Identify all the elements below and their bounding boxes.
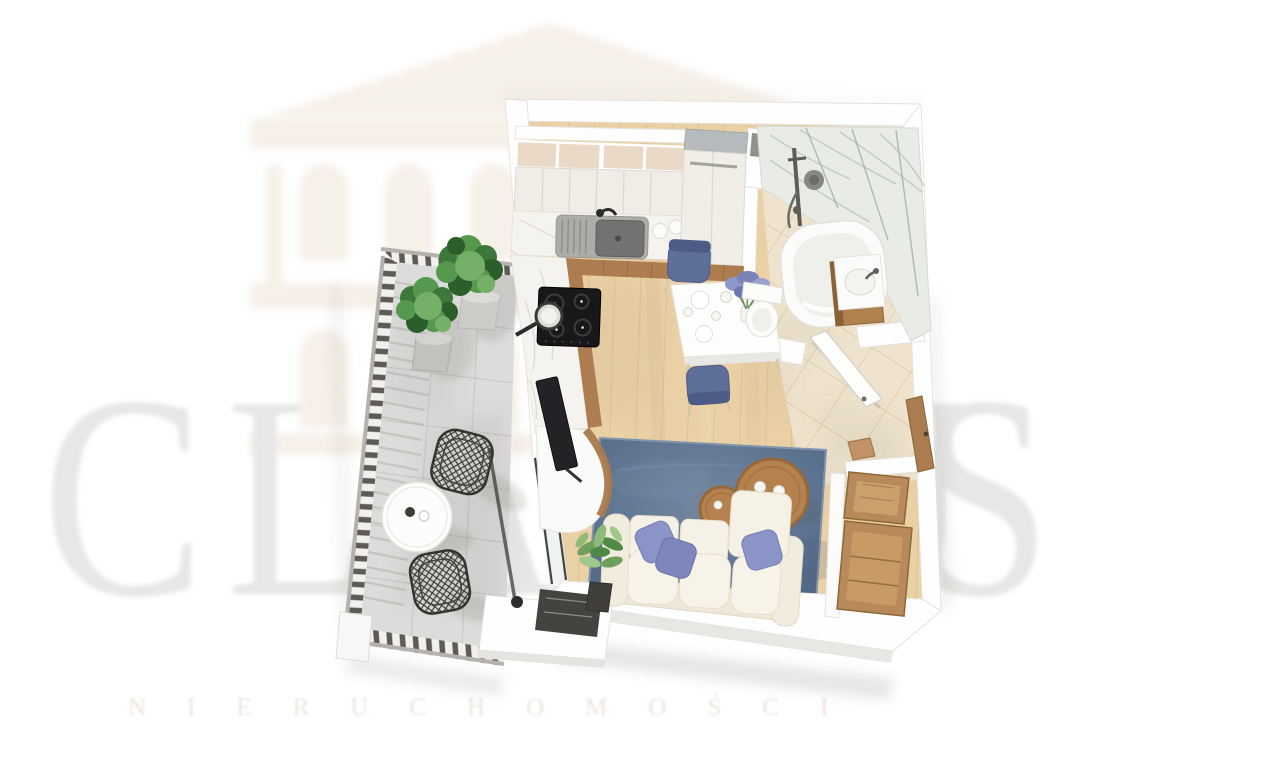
shelf-divider: [557, 142, 558, 169]
cup: [755, 482, 766, 493]
door-handle: [862, 397, 867, 402]
door-handle: [924, 432, 929, 437]
wicker-chair-2: [407, 548, 473, 617]
canister: [653, 224, 668, 239]
shower-valve: [793, 206, 801, 214]
wall-north: [505, 99, 921, 126]
shelf-divider: [644, 146, 645, 171]
wardrobe-box-1: [844, 472, 909, 524]
floorplan-svg: [0, 0, 1280, 768]
cup: [712, 312, 721, 321]
upper-cabinet-doors: [514, 167, 686, 216]
cup: [684, 308, 693, 317]
cup: [405, 507, 415, 517]
cup: [714, 501, 722, 509]
kitchen-sink: [555, 215, 648, 259]
entry-stool: [848, 438, 875, 460]
door-track-stop: [511, 596, 523, 608]
plate: [691, 291, 709, 309]
plate: [696, 326, 713, 343]
bowl: [721, 292, 732, 303]
cup: [419, 511, 429, 521]
balcony-table: [382, 482, 452, 552]
floorplan-3d-render: CLASSUS: [0, 0, 1280, 768]
planter-rim: [416, 333, 452, 345]
railing-corner-post: [336, 612, 372, 662]
wardrobe-box-2: [837, 521, 912, 616]
bathroom-vanity: [830, 254, 885, 326]
plant-pot: [586, 582, 612, 612]
